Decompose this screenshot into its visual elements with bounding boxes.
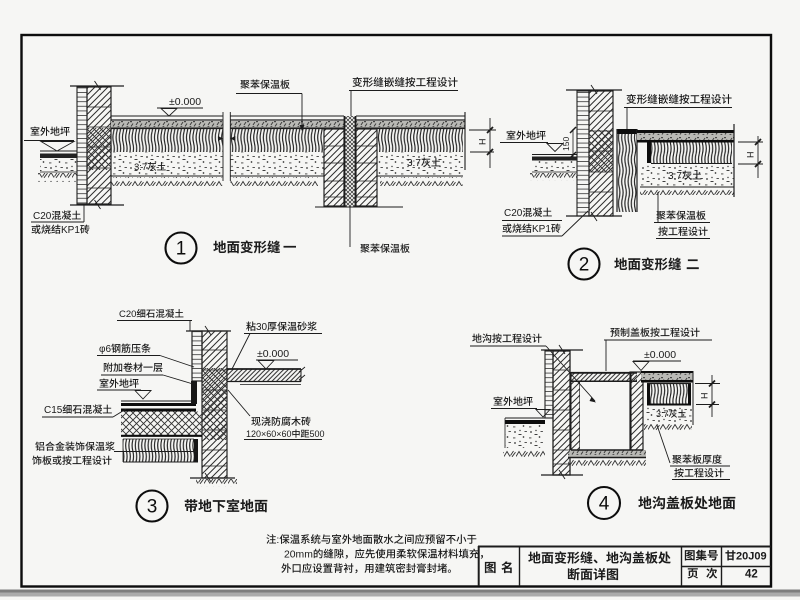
svg-text:500: 500 (310, 429, 325, 439)
svg-text:3:7: 3:7 (407, 158, 421, 169)
svg-text:φ6: φ6 (99, 344, 111, 355)
svg-text:KP1: KP1 (532, 224, 551, 235)
svg-text:4: 4 (599, 494, 610, 515)
svg-text:3: 3 (147, 497, 158, 518)
svg-text:20mm: 20mm (284, 550, 313, 561)
svg-text:1: 1 (176, 239, 187, 260)
svg-text:KP1: KP1 (61, 225, 80, 236)
svg-text:H: H (478, 139, 488, 146)
svg-text:±0.000: ±0.000 (644, 349, 676, 361)
svg-text:20J09: 20J09 (736, 551, 767, 563)
svg-text:C20: C20 (33, 211, 52, 222)
svg-text:120×60×60: 120×60×60 (246, 429, 292, 439)
svg-text:C20: C20 (119, 309, 136, 320)
svg-text:±0.000: ±0.000 (169, 96, 201, 108)
svg-text:±0.000: ±0.000 (257, 348, 289, 360)
svg-text:3:7: 3:7 (134, 162, 147, 173)
svg-text:150: 150 (561, 137, 571, 151)
svg-text:3:7: 3:7 (656, 409, 669, 419)
svg-text:C20: C20 (504, 208, 523, 219)
svg-text::: : (276, 535, 279, 546)
svg-text:3:7: 3:7 (668, 171, 682, 182)
svg-text:H: H (700, 393, 710, 400)
svg-text:H: H (746, 152, 756, 159)
svg-text:2: 2 (579, 255, 590, 276)
svg-text:30: 30 (256, 322, 268, 333)
svg-text:42: 42 (745, 569, 758, 581)
svg-text:C15: C15 (44, 405, 63, 416)
